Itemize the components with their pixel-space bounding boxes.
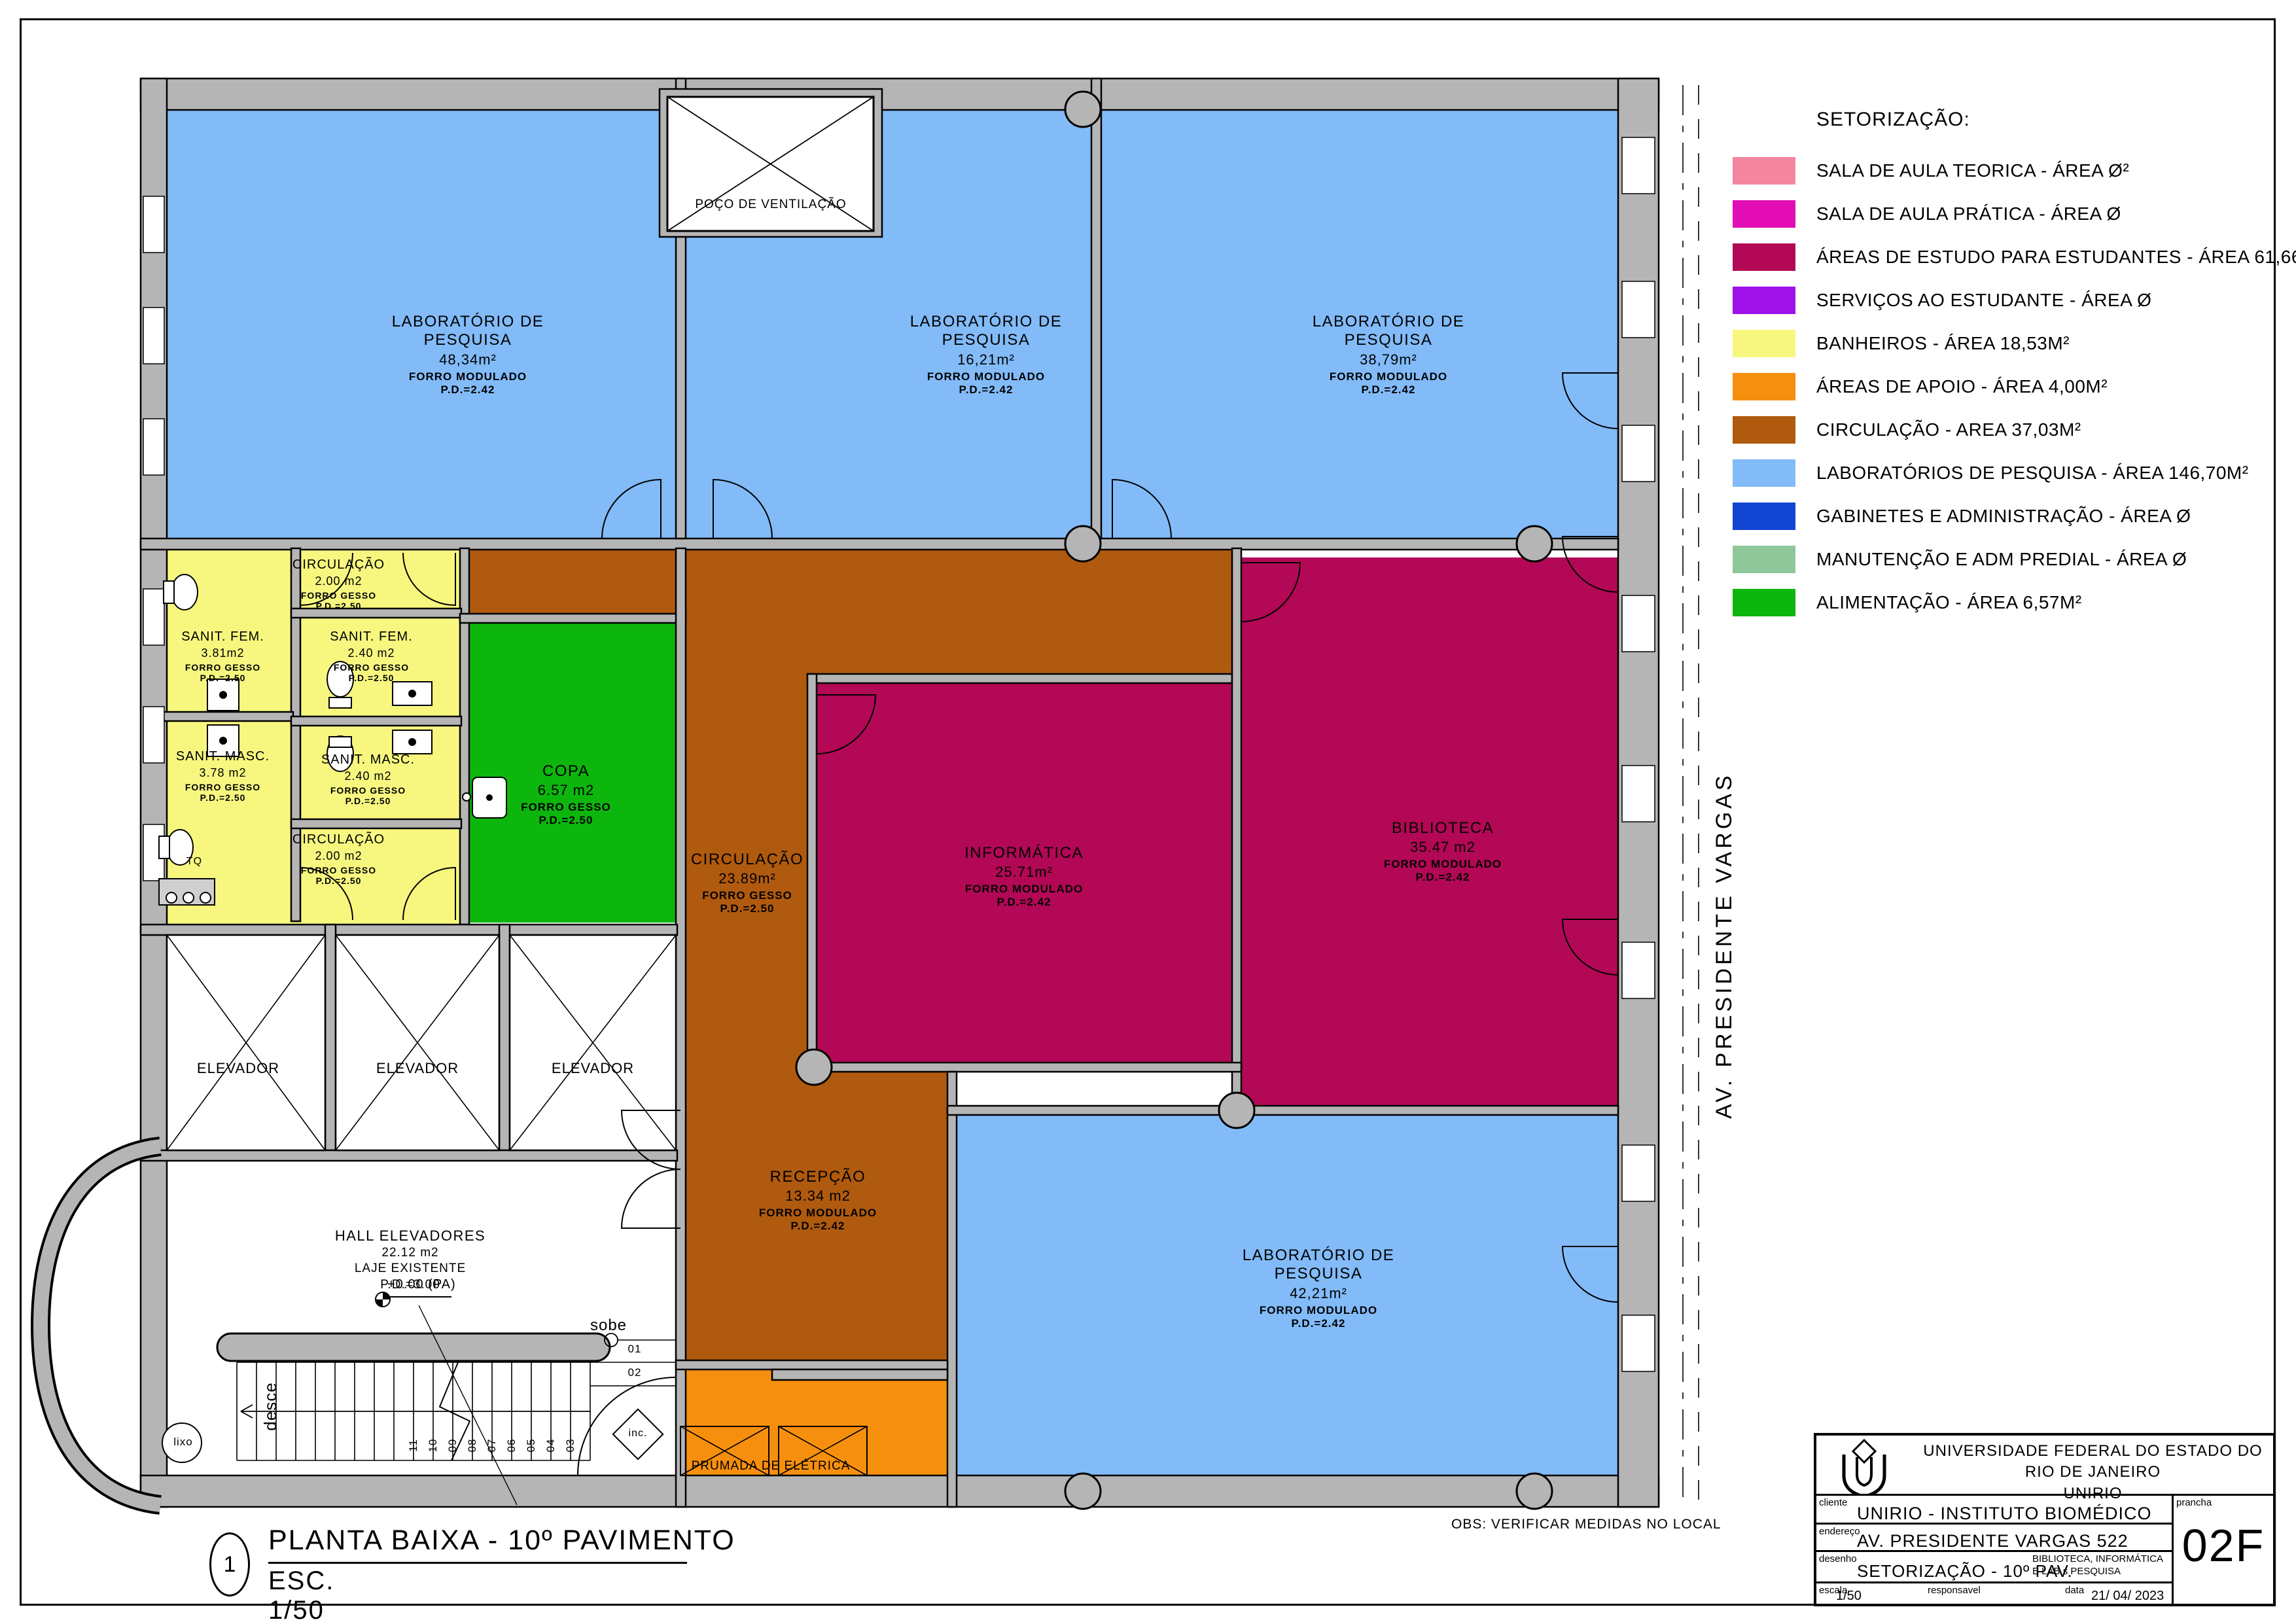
legend: SETORIZAÇÃO: SALA DE AULA TEORICA - ÁREA… — [1733, 109, 2296, 632]
obs-note: OBS: VERIFICAR MEDIDAS NO LOCAL — [1451, 1517, 1722, 1532]
view-number-bubble: 1 — [209, 1532, 250, 1597]
step-05-label: 05 — [525, 1433, 538, 1458]
legend-row: ÁREAS DE ESTUDO PARA ESTUDANTES - ÁREA 6… — [1733, 243, 2296, 271]
room-label-lab3: LABORATÓRIO DE PESQUISA 38,79m² FORRO MO… — [1290, 313, 1487, 397]
unirio-logo — [1828, 1438, 1900, 1494]
legend-swatch-alimentacao — [1733, 589, 1795, 616]
legend-row: ALIMENTAÇÃO - ÁREA 6,57M² — [1733, 589, 2296, 616]
room-label-sanit-masc-b: SANIT. MASC. 2.40 m2 FORRO GESSO P.D.=2.… — [291, 752, 445, 807]
field-label: responsavel — [1928, 1585, 1981, 1596]
legend-swatch-banheiros — [1733, 330, 1795, 357]
field-responsavel: responsavel — [1928, 1583, 2065, 1604]
sheet-number: 02F — [2174, 1519, 2273, 1572]
legend-label: ÁREAS DE APOIO - ÁREA 4,00M² — [1816, 376, 2108, 397]
level-marker — [376, 1292, 451, 1307]
level-label: +0.00 (PA) — [387, 1277, 512, 1292]
step-04-label: 04 — [544, 1433, 557, 1458]
legend-label: SERVIÇOS AO ESTUDANTE - ÁREA Ø — [1816, 290, 2151, 311]
legend-swatch-laboratorios — [1733, 459, 1795, 487]
view-name: PLANTA BAIXA - 10º PAVIMENTO — [268, 1525, 687, 1564]
room-label-informatica: INFORMÁTICA 25.71m² FORRO MODULADO P.D.=… — [926, 844, 1122, 909]
room-label-biblioteca: BIBLIOTECA 35.47 m2 FORRO MODULADO P.D.=… — [1345, 819, 1541, 884]
step-01-label: 01 — [622, 1343, 648, 1356]
legend-label: SALA DE AULA PRÁTICA - ÁREA Ø — [1816, 203, 2121, 224]
elevator-1-label: ELEVADOR — [173, 1060, 304, 1077]
incinerator-label: inc. — [618, 1428, 658, 1439]
step-07-label: 07 — [486, 1433, 499, 1458]
street-axis-lines — [1683, 85, 1699, 1505]
field-label: desenho — [1819, 1553, 1857, 1564]
org-line1: UNIVERSIDADE FEDERAL DO ESTADO DO RIO DE… — [1915, 1441, 2271, 1483]
legend-swatch-servicos-estudante — [1733, 287, 1795, 314]
legend-row: SERVIÇOS AO ESTUDANTE - ÁREA Ø — [1733, 287, 2296, 314]
field-prancha: prancha 02F — [2172, 1496, 2273, 1604]
room-label-circ-wc-top: CIRCULAÇÃO 2.00 m2 FORRO GESSO P.D.=2.50 — [255, 557, 422, 612]
desenho-extra: BIBLIOTECA, INFORMÁTICA E LAB.s PESQUISA — [2032, 1553, 2163, 1578]
legend-row: SALA DE AULA TEORICA - ÁREA Ø² — [1733, 157, 2296, 185]
field-value: AV. PRESIDENTE VARGAS 522 — [1857, 1531, 2128, 1551]
legend-row: BANHEIROS - ÁREA 18,53M² — [1733, 330, 2296, 357]
field-value: 1/50 — [1836, 1589, 1862, 1604]
step-06-label: 06 — [505, 1433, 518, 1458]
step-09-label: 09 — [446, 1433, 459, 1458]
tank-label: TQ — [178, 856, 211, 868]
field-escala: escala 1/50 — [1816, 1583, 1928, 1604]
legend-label: SALA DE AULA TEORICA - ÁREA Ø² — [1816, 160, 2129, 181]
room-label-circulacao: CIRCULAÇÃO 23.89m² FORRO GESSO P.D.=2.50 — [656, 851, 839, 915]
stairs-up-label: sobe — [576, 1316, 641, 1335]
field-desenho: desenho SETORIZAÇÃO - 10º PAV. BIBLIOTEC… — [1816, 1552, 2172, 1583]
step-03-label: 03 — [564, 1433, 577, 1458]
legend-swatch-areas-estudo — [1733, 243, 1795, 271]
room-label-lab2: LABORATÓRIO DE PESQUISA 16,21m² FORRO MO… — [888, 313, 1084, 397]
legend-swatch-areas-apoio — [1733, 373, 1795, 400]
step-08-label: 08 — [466, 1433, 479, 1458]
room-area: 48,34m² — [439, 351, 497, 368]
legend-label: GABINETES E ADMINISTRAÇÃO - ÁREA Ø — [1816, 506, 2191, 527]
legend-row: ÁREAS DE APOIO - ÁREA 4,00M² — [1733, 373, 2296, 400]
org-name: UNIVERSIDADE FEDERAL DO ESTADO DO RIO DE… — [1915, 1441, 2271, 1504]
elevator-2-label: ELEVADOR — [352, 1060, 483, 1077]
field-data: data 21/ 04/ 2023 — [2065, 1583, 2172, 1604]
legend-swatch-gabinetes — [1733, 503, 1795, 530]
field-label: data — [2065, 1585, 2084, 1596]
legend-label: ALIMENTAÇÃO - ÁREA 6,57M² — [1816, 592, 2082, 613]
ventilation-shaft-label: POÇO DE VENTILAÇÃO — [675, 198, 866, 212]
room-name: LABORATÓRIO DE PESQUISA — [392, 313, 544, 350]
field-endereco: endereço AV. PRESIDENTE VARGAS 522 — [1816, 1525, 2172, 1552]
step-02-label: 02 — [622, 1366, 648, 1379]
legend-swatch-sala-pratica — [1733, 200, 1795, 228]
legend-swatch-circulacao — [1733, 416, 1795, 444]
field-label: endereço — [1819, 1526, 1860, 1537]
legend-label: CIRCULAÇÃO - AREA 37,03M² — [1816, 419, 2081, 440]
room-height: P.D.=2.42 — [441, 383, 495, 397]
step-11-label: 11 — [407, 1433, 420, 1458]
legend-label: LABORATÓRIOS DE PESQUISA - ÁREA 146,70M² — [1816, 463, 2249, 484]
room-ceiling: FORRO MODULADO — [409, 370, 527, 383]
stairs-down-label: desce — [260, 1352, 281, 1460]
field-value: UNIRIO - INSTITUTO BIOMÉDICO — [1857, 1504, 2152, 1524]
field-value: 21/ 04/ 2023 — [2091, 1589, 2164, 1604]
legend-label: MANUTENÇÃO E ADM PREDIAL - ÁREA Ø — [1816, 549, 2187, 570]
elevator-shafts — [167, 935, 676, 1150]
field-label: prancha — [2176, 1497, 2212, 1508]
elevator-3-label: ELEVADOR — [527, 1060, 658, 1077]
legend-row: MANUTENÇÃO E ADM PREDIAL - ÁREA Ø — [1733, 546, 2296, 573]
room-label-recepcao: RECEPÇÃO 13.34 m2 FORRO MODULADO P.D.=2.… — [713, 1168, 923, 1233]
field-cliente: cliente UNIRIO - INSTITUTO BIOMÉDICO — [1816, 1496, 2172, 1525]
legend-swatch-sala-teorica — [1733, 157, 1795, 185]
room-label-sanit-masc-a: SANIT. MASC. 3.78 m2 FORRO GESSO P.D.=2.… — [149, 749, 296, 803]
legend-row: CIRCULAÇÃO - AREA 37,03M² — [1733, 416, 2296, 444]
room-label-sanit-fem-b: SANIT. FEM. 2.40 m2 FORRO GESSO P.D.=2.5… — [298, 629, 445, 684]
room-label-circ-wc-bottom: CIRCULAÇÃO 2.00 m2 FORRO GESSO P.D.=2.50 — [255, 832, 422, 887]
drawing-sheet: LABORATÓRIO DE PESQUISA 48,34m² FORRO MO… — [0, 0, 2296, 1624]
room-label-lab1: LABORATÓRIO DE PESQUISA 48,34m² FORRO MO… — [370, 313, 566, 397]
room-label-sanit-fem-a: SANIT. FEM. 3.81m2 FORRO GESSO P.D.=2.50 — [149, 629, 296, 684]
legend-title: SETORIZAÇÃO: — [1816, 109, 2296, 131]
legend-label: BANHEIROS - ÁREA 18,53M² — [1816, 333, 2070, 354]
legend-row: GABINETES E ADMINISTRAÇÃO - ÁREA Ø — [1733, 503, 2296, 530]
hall-slab: LAJE EXISTENTE — [355, 1262, 466, 1276]
legend-row: SALA DE AULA PRÁTICA - ÁREA Ø — [1733, 200, 2296, 228]
legend-label: ÁREAS DE ESTUDO PARA ESTUDANTES - ÁREA 6… — [1816, 247, 2296, 268]
legend-row: LABORATÓRIOS DE PESQUISA - ÁREA 146,70M² — [1733, 459, 2296, 487]
room-label-lab4: LABORATÓRIO DE PESQUISA 42,21m² FORRO MO… — [1220, 1246, 1417, 1330]
trash-chute-label: lixo — [167, 1436, 200, 1449]
legend-swatch-manutencao — [1733, 546, 1795, 573]
titleblock-header: UNIVERSIDADE FEDERAL DO ESTADO DO RIO DE… — [1816, 1436, 2273, 1496]
street-label: AV. PRESIDENTE VARGAS — [1712, 667, 1737, 1119]
title-block: UNIVERSIDADE FEDERAL DO ESTADO DO RIO DE… — [1814, 1433, 2276, 1606]
step-10-label: 10 — [427, 1433, 440, 1458]
room-label-copa: COPA 6.57 m2 FORRO GESSO P.D.=2.50 — [468, 762, 664, 827]
field-label: cliente — [1819, 1497, 1847, 1508]
titleblock-bottom-row: escala 1/50 responsavel data 21/ 04/ 202… — [1816, 1583, 2172, 1604]
view-scale: ESC. 1/50 — [268, 1566, 334, 1624]
electrical-riser-label: PRUMADA DE ELÉTRICA — [679, 1459, 862, 1474]
